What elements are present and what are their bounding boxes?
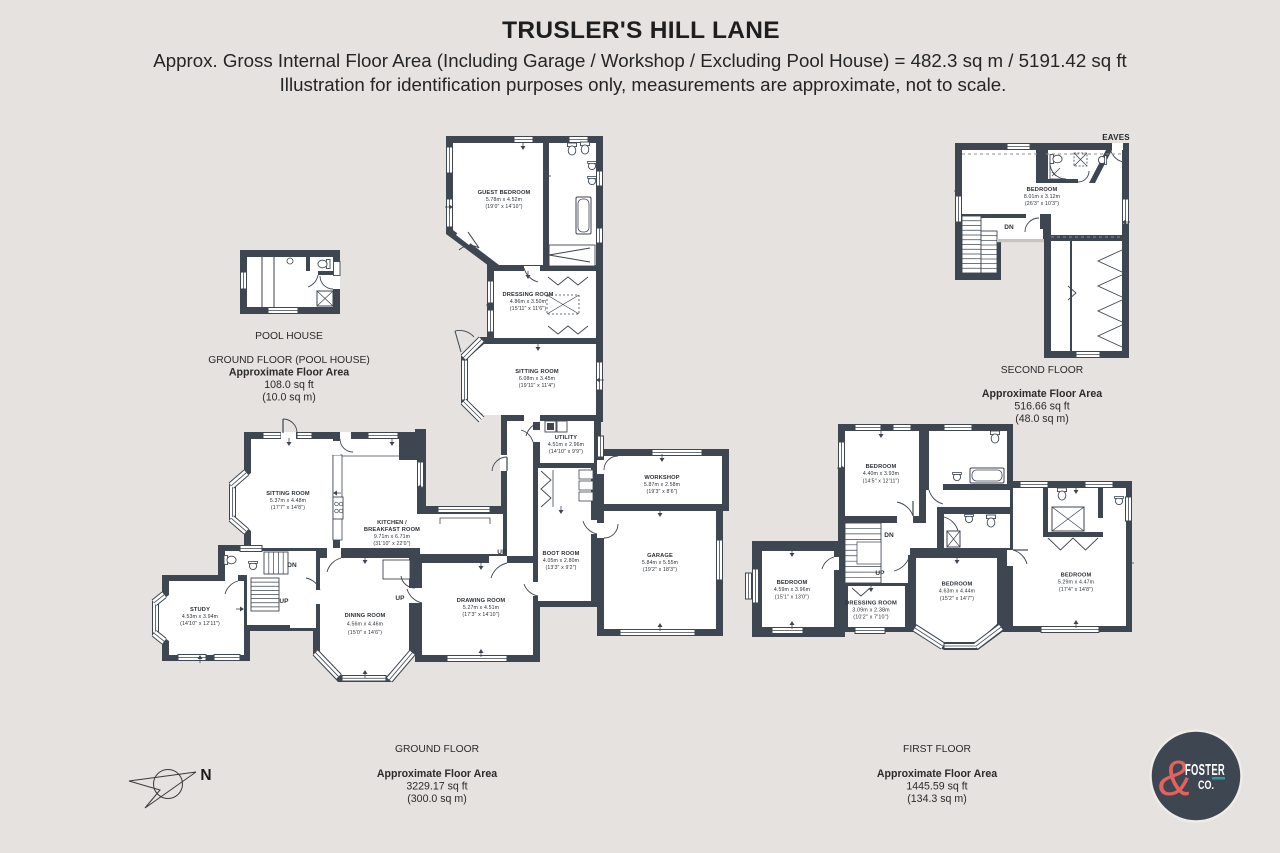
svg-text:GROUND FLOOR (POOL HOUSE): GROUND FLOOR (POOL HOUSE) xyxy=(208,355,370,366)
svg-text:POOL HOUSE: POOL HOUSE xyxy=(255,331,323,342)
svg-text:5.37m x 4.48m: 5.37m x 4.48m xyxy=(270,498,306,504)
svg-text:DINING ROOM: DINING ROOM xyxy=(345,613,386,619)
svg-text:GROUND FLOOR: GROUND FLOOR xyxy=(395,744,479,755)
svg-text:FIRST FLOOR: FIRST FLOOR xyxy=(903,744,971,755)
svg-text:108.0 sq ft: 108.0 sq ft xyxy=(264,379,314,391)
svg-text:4.86m x 3.50m: 4.86m x 3.50m xyxy=(510,299,546,305)
svg-text:BEDROOM: BEDROOM xyxy=(1061,573,1092,579)
svg-text:(19'11" x 11'4"): (19'11" x 11'4") xyxy=(519,383,556,389)
svg-text:1445.59 sq ft: 1445.59 sq ft xyxy=(906,781,967,793)
svg-text:516.66 sq ft: 516.66 sq ft xyxy=(1014,401,1069,413)
svg-text:N: N xyxy=(200,767,211,784)
svg-text:BEDROOM: BEDROOM xyxy=(1027,187,1058,193)
svg-text:SITTING ROOM: SITTING ROOM xyxy=(266,491,310,497)
svg-text:GUEST BEDROOM: GUEST BEDROOM xyxy=(478,190,531,196)
svg-text:CO.: CO. xyxy=(1198,778,1214,792)
svg-text:(14'5" x 12'11"): (14'5" x 12'11") xyxy=(863,478,900,484)
svg-text:KITCHEN /: KITCHEN / xyxy=(377,520,407,526)
svg-text:6.08m x 3.45m: 6.08m x 3.45m xyxy=(519,376,555,382)
svg-text:DN: DN xyxy=(1004,224,1014,231)
svg-text:FOSTER: FOSTER xyxy=(1185,762,1225,779)
svg-text:UP: UP xyxy=(875,570,885,577)
svg-text:5.29m x 4.47m: 5.29m x 4.47m xyxy=(1058,580,1094,586)
svg-text:5.27m x 4.51m: 5.27m x 4.51m xyxy=(463,605,499,611)
svg-text:SECOND FLOOR: SECOND FLOOR xyxy=(1001,365,1083,376)
svg-text:4.51m x 2.96m: 4.51m x 2.96m xyxy=(548,442,584,448)
svg-text:(14'10" x 12'11"): (14'10" x 12'11") xyxy=(180,621,220,627)
svg-text:DN: DN xyxy=(884,532,894,539)
svg-text:(26'3" x 10'3"): (26'3" x 10'3") xyxy=(1025,201,1059,207)
svg-text:(17'7" x 14'8"): (17'7" x 14'8") xyxy=(271,505,305,511)
svg-text:BEDROOM: BEDROOM xyxy=(777,580,808,586)
svg-text:Approximate Floor Area: Approximate Floor Area xyxy=(229,367,349,379)
svg-text:UTILITY: UTILITY xyxy=(555,435,578,441)
svg-text:5.84m x 5.55m: 5.84m x 5.55m xyxy=(642,560,678,566)
svg-text:(15'2" x 14'7"): (15'2" x 14'7") xyxy=(940,596,974,602)
svg-text:8.01m x 3.12m: 8.01m x 3.12m xyxy=(1024,194,1060,200)
svg-text:5.78m x 4.52m: 5.78m x 4.52m xyxy=(486,197,522,203)
svg-text:4.56m x 4.46m: 4.56m x 4.46m xyxy=(347,622,383,628)
svg-text:(17'4" x 14'8"): (17'4" x 14'8") xyxy=(1059,587,1093,593)
svg-text:Approx. Gross Internal Floor A: Approx. Gross Internal Floor Area (Inclu… xyxy=(153,50,1127,71)
svg-text:4.59m x 3.96m: 4.59m x 3.96m xyxy=(774,587,810,593)
svg-text:(14'10" x 9'9"): (14'10" x 9'9") xyxy=(549,449,583,455)
svg-text:Approximate Floor Area: Approximate Floor Area xyxy=(877,768,997,780)
svg-text:(13'3" x 9'2"): (13'3" x 9'2") xyxy=(545,565,576,571)
svg-text:(15'11" x 11'6"): (15'11" x 11'6") xyxy=(510,306,547,312)
svg-text:Approximate Floor Area: Approximate Floor Area xyxy=(377,768,497,780)
svg-text:SITTING ROOM: SITTING ROOM xyxy=(515,369,559,375)
svg-text:TRUSLER'S HILL LANE: TRUSLER'S HILL LANE xyxy=(502,17,780,44)
svg-text:(48.0 sq m): (48.0 sq m) xyxy=(1015,413,1069,425)
svg-text:Illustration for identificatio: Illustration for identification purposes… xyxy=(280,74,1007,95)
svg-text:4.05m x 2.80m: 4.05m x 2.80m xyxy=(543,558,579,564)
svg-text:DRAWING ROOM: DRAWING ROOM xyxy=(457,598,506,604)
svg-text:DRESSING ROOM: DRESSING ROOM xyxy=(503,292,554,298)
svg-text:3.09m x 2.38m: 3.09m x 2.38m xyxy=(852,608,890,614)
svg-text:UP: UP xyxy=(395,595,405,602)
svg-text:4.40m x 3.93m: 4.40m x 3.93m xyxy=(863,471,899,477)
svg-text:(300.0 sq m): (300.0 sq m) xyxy=(407,793,466,805)
svg-text:Approximate Floor Area: Approximate Floor Area xyxy=(982,388,1102,400)
svg-text:5.87m x 2.58m: 5.87m x 2.58m xyxy=(644,482,680,488)
svg-text:UP: UP xyxy=(279,598,289,605)
svg-text:BREAKFAST ROOM: BREAKFAST ROOM xyxy=(364,527,420,533)
svg-text:(10.0 sq m): (10.0 sq m) xyxy=(262,392,316,404)
svg-text:4.63m x 4.44m: 4.63m x 4.44m xyxy=(939,589,975,595)
svg-text:4.53m x 3.94m: 4.53m x 3.94m xyxy=(182,614,218,620)
svg-text:DN: DN xyxy=(287,562,297,569)
svg-text:3229.17 sq ft: 3229.17 sq ft xyxy=(406,781,467,793)
svg-text:BOOT ROOM: BOOT ROOM xyxy=(542,551,579,557)
svg-text:9.71m x 6.71m: 9.71m x 6.71m xyxy=(374,534,410,540)
svg-text:WORKSHOP: WORKSHOP xyxy=(644,475,679,481)
svg-text:GARAGE: GARAGE xyxy=(647,553,673,559)
svg-text:(19'0" x 14'10"): (19'0" x 14'10") xyxy=(485,204,522,210)
svg-text:(17'3" x 14'10"): (17'3" x 14'10") xyxy=(462,612,499,618)
svg-text:UP: UP xyxy=(497,549,507,556)
svg-text:(15'0" x 14'6"): (15'0" x 14'6") xyxy=(348,630,382,636)
svg-text:(31'10" x 22'0"): (31'10" x 22'0") xyxy=(373,541,410,547)
svg-text:(10'2" x 7'10"): (10'2" x 7'10") xyxy=(853,615,888,621)
svg-text:BEDROOM: BEDROOM xyxy=(942,582,973,588)
svg-text:DRESSING ROOM: DRESSING ROOM xyxy=(845,601,897,607)
svg-text:(134.3 sq m): (134.3 sq m) xyxy=(907,793,966,805)
svg-text:(19'2" x 18'3"): (19'2" x 18'3") xyxy=(643,567,677,573)
svg-text:BEDROOM: BEDROOM xyxy=(866,464,897,470)
svg-text:STUDY: STUDY xyxy=(190,607,210,613)
svg-text:(19'3" x 8'6"): (19'3" x 8'6") xyxy=(646,489,677,495)
svg-text:(15'1" x 13'0"): (15'1" x 13'0") xyxy=(775,594,809,600)
svg-text:EAVES: EAVES xyxy=(1102,133,1130,142)
